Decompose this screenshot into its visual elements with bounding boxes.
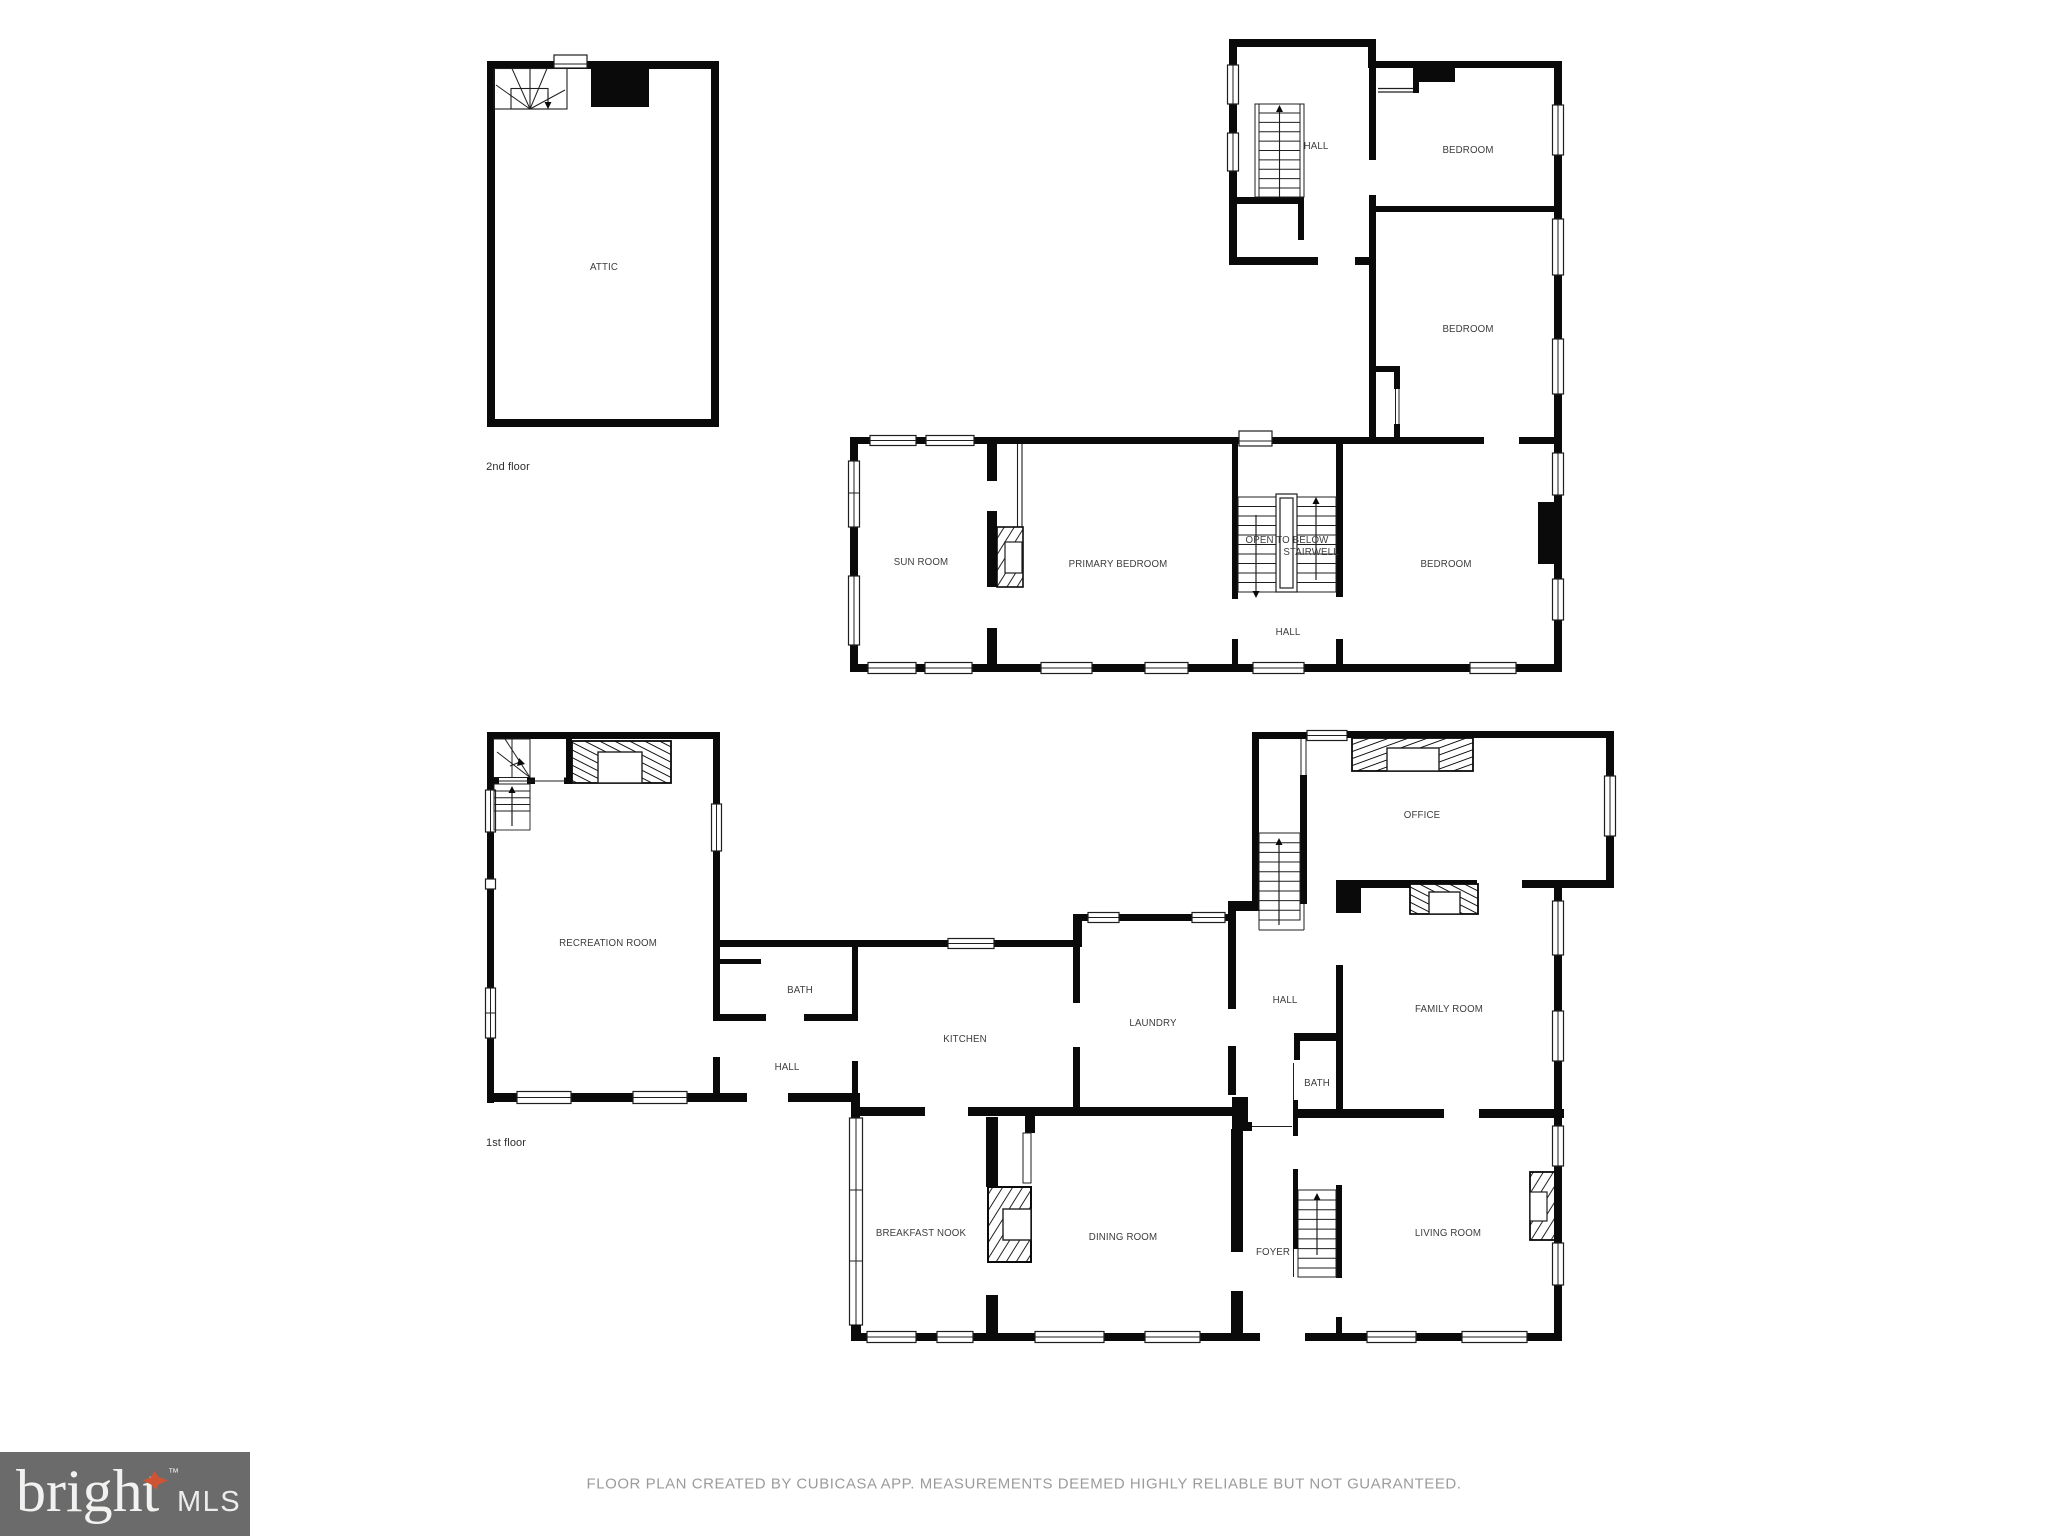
svg-text:1st floor: 1st floor	[486, 1137, 526, 1149]
svg-text:HALL: HALL	[1304, 141, 1329, 152]
svg-text:OPEN TO BELOW: OPEN TO BELOW	[1246, 535, 1330, 546]
svg-text:SUN ROOM: SUN ROOM	[894, 557, 948, 568]
svg-text:RECREATION ROOM: RECREATION ROOM	[559, 938, 657, 949]
svg-text:™: ™	[168, 1467, 179, 1479]
svg-text:BEDROOM: BEDROOM	[1442, 145, 1493, 156]
svg-text:PRIMARY BEDROOM: PRIMARY BEDROOM	[1069, 559, 1168, 570]
svg-text:BATH: BATH	[787, 985, 813, 996]
svg-text:bright: bright	[16, 1458, 160, 1524]
svg-text:STAIRWELL: STAIRWELL	[1283, 547, 1339, 558]
svg-text:KITCHEN: KITCHEN	[943, 1034, 987, 1045]
svg-text:HALL: HALL	[1273, 995, 1298, 1006]
svg-text:DINING ROOM: DINING ROOM	[1089, 1232, 1157, 1243]
svg-text:BREAKFAST NOOK: BREAKFAST NOOK	[876, 1228, 967, 1239]
svg-text:BATH: BATH	[1304, 1078, 1330, 1089]
svg-text:LAUNDRY: LAUNDRY	[1129, 1018, 1177, 1029]
svg-text:HALL: HALL	[775, 1062, 800, 1073]
svg-text:ATTIC: ATTIC	[590, 262, 618, 273]
svg-text:BEDROOM: BEDROOM	[1442, 324, 1493, 335]
svg-text:FLOOR PLAN CREATED BY CUBICASA: FLOOR PLAN CREATED BY CUBICASA APP. MEAS…	[587, 1476, 1462, 1493]
svg-text:BEDROOM: BEDROOM	[1420, 559, 1471, 570]
svg-text:LIVING ROOM: LIVING ROOM	[1415, 1228, 1481, 1239]
svg-text:FOYER: FOYER	[1256, 1247, 1290, 1258]
svg-text:2nd floor: 2nd floor	[486, 461, 530, 473]
svg-text:FAMILY ROOM: FAMILY ROOM	[1415, 1004, 1483, 1015]
svg-text:OFFICE: OFFICE	[1404, 810, 1441, 821]
svg-text:MLS: MLS	[177, 1486, 241, 1518]
svg-text:HALL: HALL	[1276, 627, 1301, 638]
